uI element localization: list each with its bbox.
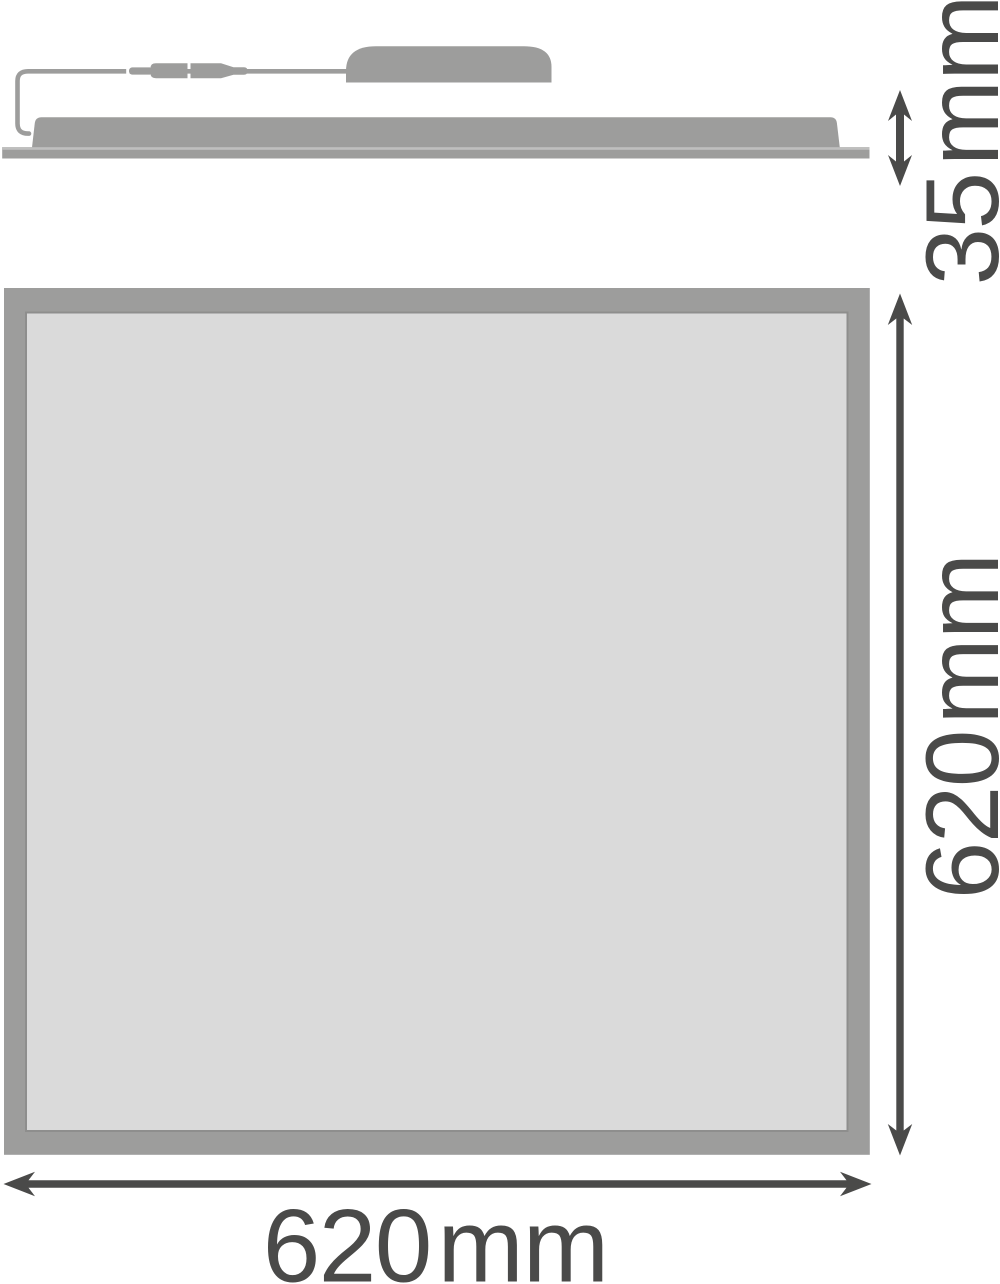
svg-text:35mm: 35mm <box>904 0 1000 286</box>
